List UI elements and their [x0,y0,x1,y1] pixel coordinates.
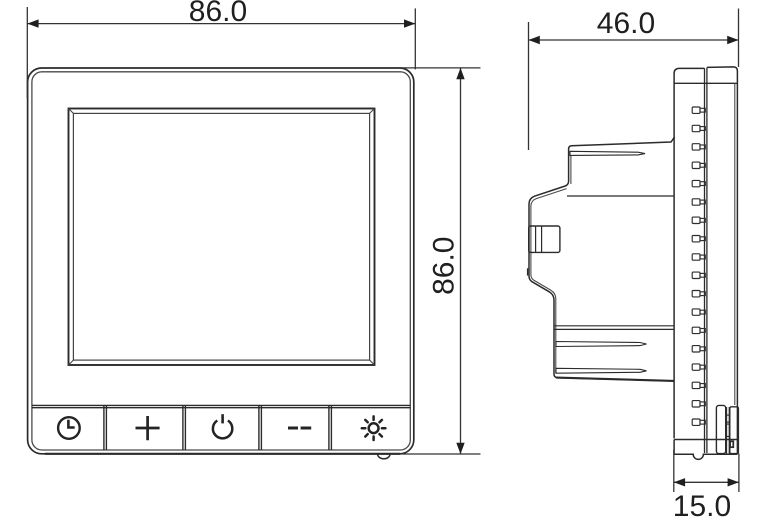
svg-text:86.0: 86.0 [189,0,247,28]
svg-text:86.0: 86.0 [428,237,461,295]
svg-text:46.0: 46.0 [597,7,655,40]
svg-text:15.0: 15.0 [673,490,731,523]
